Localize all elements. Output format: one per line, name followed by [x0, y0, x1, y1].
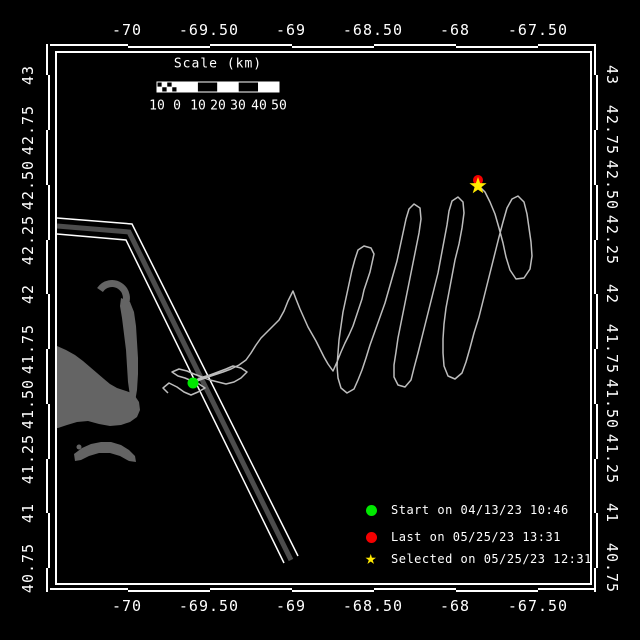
scalebar-checker — [167, 82, 172, 87]
scalebar-cell — [218, 82, 238, 92]
left-axis-label: 43 — [19, 65, 37, 85]
scalebar-tick-label: 0 — [173, 99, 181, 114]
scalebar-tick-label: 10 — [190, 99, 206, 114]
scalebar-checker — [167, 87, 172, 92]
land-cape-arm — [120, 298, 138, 402]
left-axis-label: 41.25 — [19, 434, 37, 484]
bottom-axis-label: -70 — [112, 597, 142, 615]
left-axis-label: 41.50 — [19, 379, 37, 429]
frame-tick-band — [210, 44, 292, 46]
vehicle-track[interactable] — [163, 187, 532, 395]
scalebar-tick-label: 40 — [251, 99, 267, 114]
left-axis-label: 42.25 — [19, 215, 37, 265]
scalebar-tick-label: 20 — [210, 99, 226, 114]
top-axis-label: -67.50 — [508, 21, 568, 39]
legend-item-last: Last on 05/25/23 13:31 — [366, 530, 561, 544]
selected-marker-icon: ★ — [362, 550, 380, 568]
scalebar-checker — [157, 87, 162, 92]
legend-item-selected: ★ Selected on 05/25/23 12:31 — [366, 552, 592, 566]
left-axis-label: 42 — [19, 284, 37, 304]
left-axis-label: 41 — [19, 503, 37, 523]
land-nantucket — [74, 442, 136, 462]
left-axis-label: 42.50 — [19, 160, 37, 210]
scalebar-cell — [238, 82, 258, 92]
right-axis-label: 41.25 — [603, 434, 621, 484]
right-axis-label: 42.50 — [603, 160, 621, 210]
bottom-axis-label: -69 — [276, 597, 306, 615]
bottom-axis-label: -67.50 — [508, 597, 568, 615]
scalebar-cell — [177, 82, 197, 92]
start-marker-icon — [366, 505, 377, 516]
top-axis-label: -68.50 — [343, 21, 403, 39]
scalebar-tick-label: 10 — [149, 99, 165, 114]
land-islet — [77, 445, 82, 450]
right-axis-label: 41.75 — [603, 324, 621, 374]
scalebar-checker — [172, 82, 177, 87]
scalebar-title: Scale (km) — [174, 57, 262, 72]
bottom-axis-label: -68 — [440, 597, 470, 615]
right-axis-label: 41 — [603, 503, 621, 523]
right-axis-label: 42 — [603, 284, 621, 304]
bottom-axis-label: -68.50 — [343, 597, 403, 615]
top-axis-label: -69.50 — [179, 21, 239, 39]
right-axis-label: 41.50 — [603, 379, 621, 429]
start-marker[interactable] — [188, 378, 199, 389]
frame-tick-band — [538, 44, 598, 46]
scalebar-tick-label: 50 — [271, 99, 287, 114]
frame-tick-band — [374, 44, 456, 46]
land-provincetown-hook — [100, 284, 126, 306]
scalebar-tick-label: 30 — [230, 99, 246, 114]
scalebar-cell — [259, 82, 279, 92]
frame-tick-band — [128, 44, 210, 46]
legend-item-start: Start on 04/13/23 10:46 — [366, 503, 569, 517]
top-axis-label: -68 — [440, 21, 470, 39]
frame-tick-band — [46, 44, 128, 46]
right-axis-label: 42.25 — [603, 215, 621, 265]
right-axis-label: 40.75 — [603, 543, 621, 593]
right-axis-label: 43 — [603, 65, 621, 85]
scalebar-checker — [162, 87, 167, 92]
track-map-window: -70-69.50-69-68.50-68-67.50-70-69.50-69-… — [0, 0, 640, 640]
left-axis-label: 42.75 — [19, 105, 37, 155]
last-marker-icon — [366, 532, 377, 543]
frame-tick-band — [456, 44, 538, 46]
right-axis-label: 42.75 — [603, 105, 621, 155]
top-axis-label: -69 — [276, 21, 306, 39]
legend-label-start: Start on 04/13/23 10:46 — [391, 503, 569, 517]
map-canvas[interactable] — [0, 0, 640, 640]
scalebar-checker — [162, 82, 167, 87]
left-axis-label: 41.75 — [19, 324, 37, 374]
scalebar-cell — [197, 82, 217, 92]
legend-label-last: Last on 05/25/23 13:31 — [391, 530, 561, 544]
frame-tick-band — [292, 44, 374, 46]
left-axis-label: 40.75 — [19, 543, 37, 593]
bottom-axis-label: -69.50 — [179, 597, 239, 615]
scalebar-checker — [172, 87, 177, 92]
top-axis-label: -70 — [112, 21, 142, 39]
scalebar-checker — [157, 82, 162, 87]
legend-label-selected: Selected on 05/25/23 12:31 — [391, 552, 592, 566]
